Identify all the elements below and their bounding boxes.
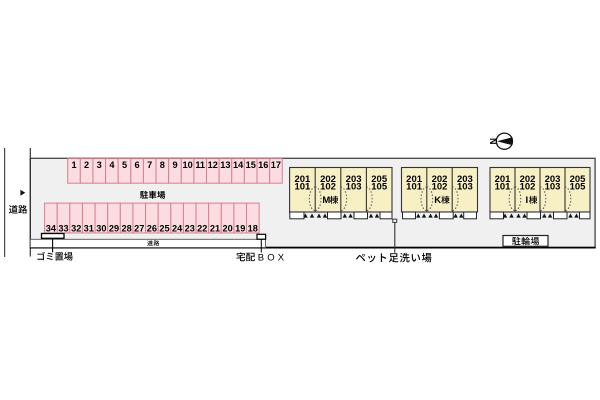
svg-text:105: 105 xyxy=(570,181,587,192)
svg-text:N: N xyxy=(488,138,498,145)
svg-text:31: 31 xyxy=(84,223,94,233)
svg-text:101: 101 xyxy=(406,181,423,192)
svg-text:29: 29 xyxy=(109,223,119,233)
svg-text:K: K xyxy=(434,195,441,206)
svg-text:I: I xyxy=(526,195,529,206)
svg-text:30: 30 xyxy=(96,223,106,233)
svg-text:101: 101 xyxy=(495,181,512,192)
svg-text:23: 23 xyxy=(185,223,195,233)
svg-text:103: 103 xyxy=(545,181,561,192)
svg-text:9: 9 xyxy=(172,160,177,170)
svg-text:34: 34 xyxy=(46,223,57,233)
svg-text:27: 27 xyxy=(134,223,144,233)
svg-text:4: 4 xyxy=(109,160,115,170)
svg-text:6: 6 xyxy=(135,160,140,170)
svg-text:101: 101 xyxy=(294,181,311,192)
svg-text:18: 18 xyxy=(248,223,258,233)
svg-text:10: 10 xyxy=(182,160,192,170)
svg-text:32: 32 xyxy=(71,223,81,233)
svg-text:103: 103 xyxy=(457,181,473,192)
svg-text:1: 1 xyxy=(71,160,76,170)
svg-text:3: 3 xyxy=(97,160,102,170)
svg-text:8: 8 xyxy=(160,160,165,170)
svg-text:16: 16 xyxy=(258,160,268,170)
svg-text:12: 12 xyxy=(208,160,218,170)
svg-text:M: M xyxy=(322,195,330,206)
svg-text:20: 20 xyxy=(222,223,232,233)
svg-text:24: 24 xyxy=(172,223,183,233)
svg-text:5: 5 xyxy=(122,160,127,170)
svg-text:15: 15 xyxy=(246,160,256,170)
svg-text:102: 102 xyxy=(520,181,536,192)
svg-text:21: 21 xyxy=(210,223,220,233)
svg-text:14: 14 xyxy=(233,160,244,170)
svg-text:BOX: BOX xyxy=(258,252,287,263)
svg-text:25: 25 xyxy=(159,223,169,233)
svg-text:2: 2 xyxy=(84,160,89,170)
svg-text:11: 11 xyxy=(195,160,205,170)
svg-text:105: 105 xyxy=(371,181,388,192)
svg-text:22: 22 xyxy=(197,223,207,233)
svg-text:26: 26 xyxy=(147,223,157,233)
svg-text:33: 33 xyxy=(58,223,68,233)
svg-text:102: 102 xyxy=(320,181,336,192)
svg-text:103: 103 xyxy=(346,181,362,192)
svg-text:7: 7 xyxy=(147,160,152,170)
svg-text:13: 13 xyxy=(220,160,230,170)
svg-text:102: 102 xyxy=(432,181,448,192)
svg-text:19: 19 xyxy=(235,223,245,233)
svg-text:28: 28 xyxy=(121,223,131,233)
svg-text:17: 17 xyxy=(271,160,281,170)
